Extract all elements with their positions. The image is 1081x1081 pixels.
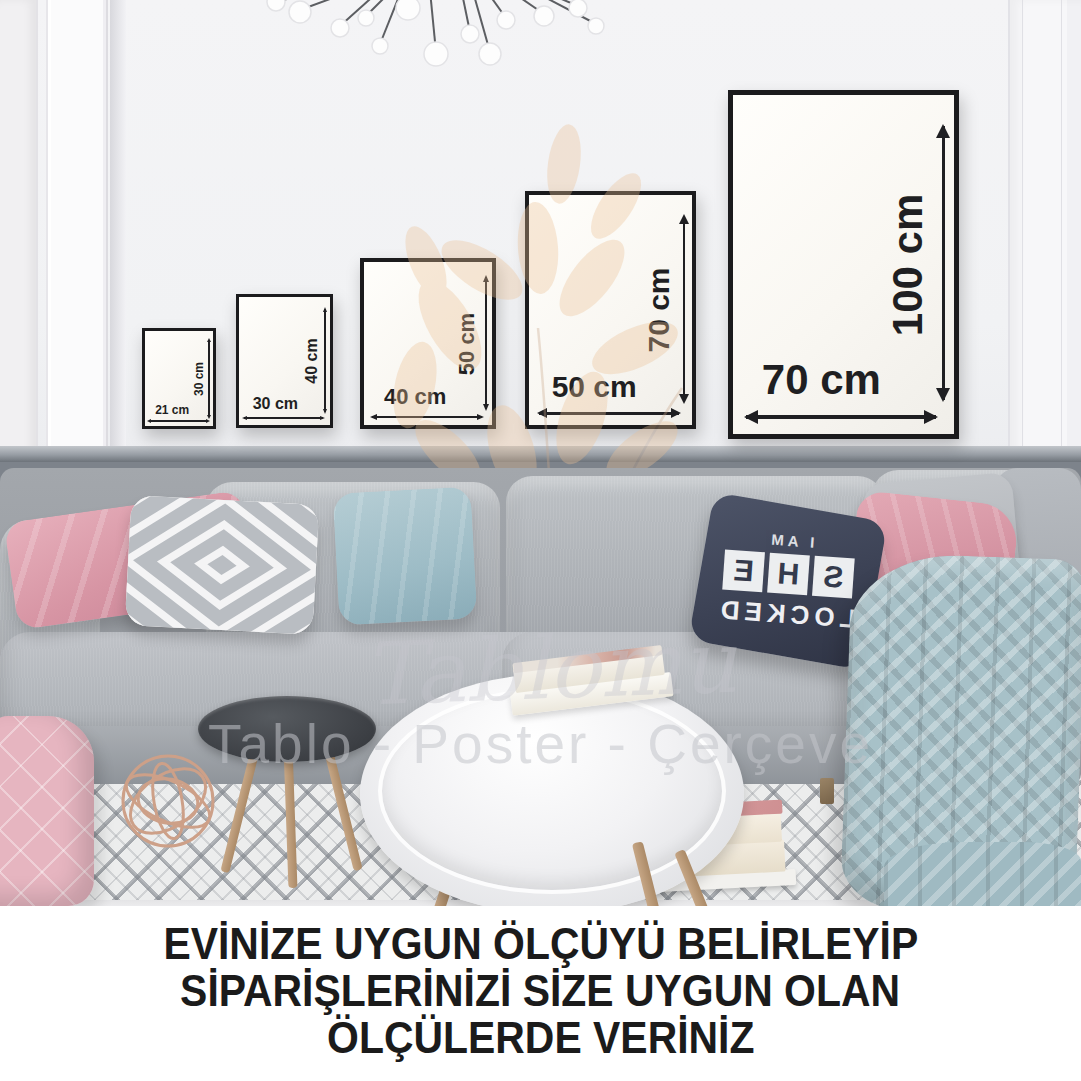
height-label: 30 cm [192, 361, 206, 395]
copper-wire-ball-icon [116, 752, 220, 850]
chair-rail-molding [0, 446, 1081, 462]
geometric-pattern-pillow [125, 495, 320, 635]
height-label: 40 cm [303, 338, 321, 383]
caption-band: EVİNİZE UYGUN ÖLÇÜYÜ BELİRLEYİP SİPARİŞL… [0, 906, 1081, 1081]
pillow-text-bottom: LOCKED [715, 594, 857, 635]
blue-velvet-pillow [333, 486, 478, 625]
caption-line-2: SİPARİŞLERİNİZİ SİZE UYGUN OLAN [181, 967, 901, 1014]
wall-molding-right-line [1022, 0, 1062, 452]
frame-40x50: 40 cm 50 cm [360, 258, 496, 429]
height-arrow-icon [683, 216, 685, 402]
pillow-letter: S [812, 556, 855, 599]
coffee-table-rim [378, 688, 726, 894]
dark-side-table [198, 696, 376, 762]
frame-70x100: 70 cm 100 cm [728, 90, 959, 439]
caption-line-1: EVİNİZE UYGUN ÖLÇÜYÜ BELİRLEYİP [163, 920, 918, 967]
wall-molding-left [0, 0, 38, 462]
height-arrow-icon [324, 309, 326, 413]
height-label: 70 cm [642, 267, 676, 352]
width-label: 40 cm [364, 384, 466, 410]
wall-corner-shadow [110, 0, 126, 462]
height-label: 100 cm [884, 193, 932, 335]
height-arrow-icon [485, 277, 487, 409]
frame-21x30: 21 cm 30 cm [142, 328, 216, 429]
sofa-leg [820, 778, 834, 804]
frame-50x70: 50 cm 70 cm [525, 191, 696, 429]
living-room-product-photo: 21 cm 30 cm 30 cm 40 cm 40 cm 50 cm 50 c… [0, 0, 1081, 1081]
pillow-text-top: I AM [767, 530, 815, 550]
height-arrow-icon [208, 340, 210, 417]
frame-30x40: 30 cm 40 cm [236, 294, 333, 428]
caption-line-3: ÖLÇÜLERDE VERİNİZ [327, 1014, 754, 1061]
pink-pouf [0, 716, 94, 906]
pillow-letter: E [722, 550, 765, 593]
pillow-letter: H [767, 553, 810, 596]
wall-pilaster-left [46, 0, 108, 462]
chunky-knit-blanket-floor [884, 842, 1081, 906]
pillow-letter-blocks: S H E [722, 550, 854, 599]
height-arrow-icon [942, 126, 945, 401]
chandelier-icon [258, 0, 618, 120]
height-label: 50 cm [454, 312, 480, 374]
